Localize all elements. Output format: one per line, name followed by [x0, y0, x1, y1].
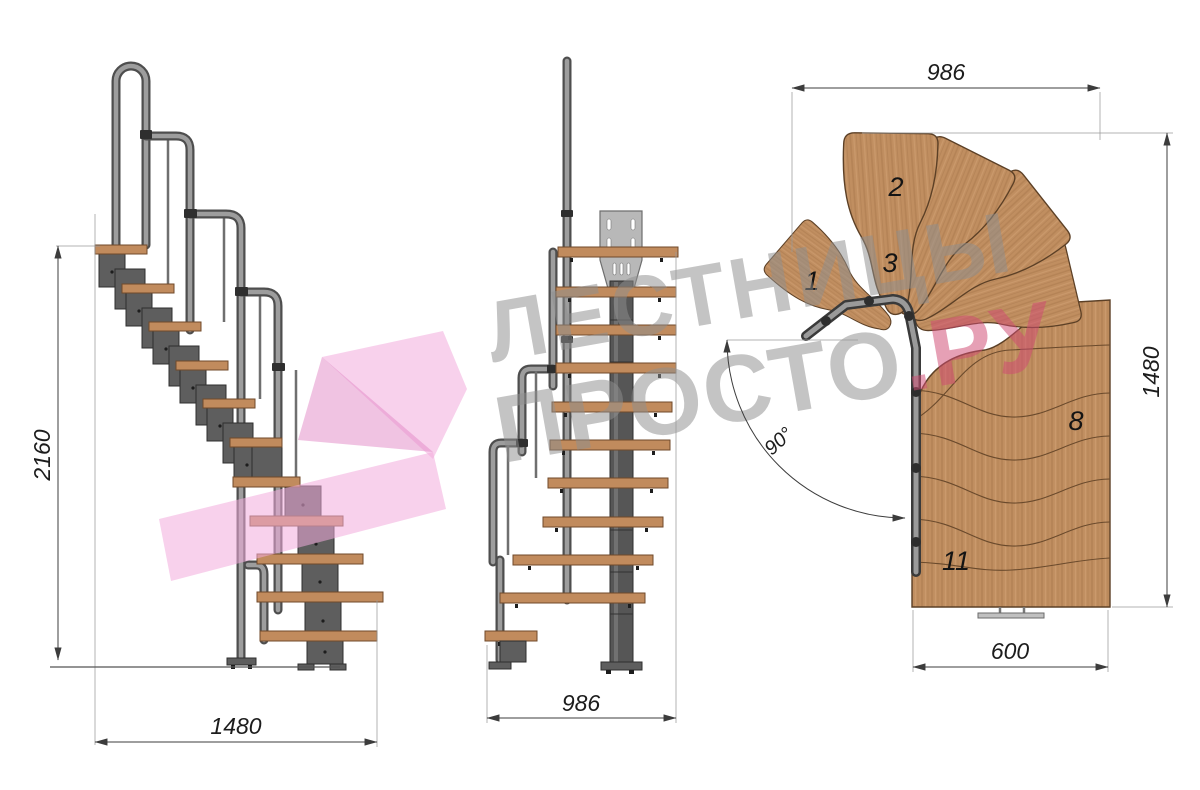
side-modules — [99, 254, 346, 670]
handrail-loop — [116, 66, 146, 245]
tread — [513, 555, 653, 565]
dim-label-986-plan: 986 — [927, 59, 966, 85]
rail-clamp — [140, 130, 152, 139]
column-base-flange — [601, 662, 642, 670]
tread — [230, 438, 282, 447]
plan-base-bracket — [978, 607, 1044, 618]
rail-clamp — [272, 363, 285, 371]
dim-label-600: 600 — [991, 638, 1030, 664]
rail-clamp — [561, 210, 573, 217]
step-label-2: 2 — [887, 172, 903, 202]
step-label-8: 8 — [1068, 406, 1083, 436]
rail-clamp — [184, 209, 197, 218]
tread — [257, 554, 363, 564]
newel-base-flange — [227, 658, 256, 665]
tread — [543, 517, 663, 527]
tread — [485, 631, 537, 641]
dim-label-986-front: 986 — [562, 690, 601, 716]
tread — [176, 361, 228, 370]
tread — [257, 592, 383, 602]
staircase-drawing: 1 2 3 8 11 ЛЕСТНИЦЫ ПРОСТО.РУ — [0, 0, 1200, 790]
dim-label-1480-plan: 1480 — [1138, 346, 1164, 397]
dim-label-1480-side: 1480 — [210, 713, 261, 739]
newel-base-flange — [489, 662, 511, 669]
tread — [122, 284, 174, 293]
tread — [149, 322, 201, 331]
dim-label-2160: 2160 — [29, 429, 55, 481]
dim-plan-bottom: 600 — [913, 610, 1108, 672]
tread — [260, 631, 377, 641]
tread — [233, 477, 300, 487]
module — [500, 641, 526, 662]
rail-clamp — [235, 287, 248, 296]
tread — [95, 245, 147, 254]
tread — [548, 478, 668, 488]
tread — [203, 399, 255, 408]
tread — [500, 593, 645, 603]
step-label-11: 11 — [942, 546, 970, 576]
